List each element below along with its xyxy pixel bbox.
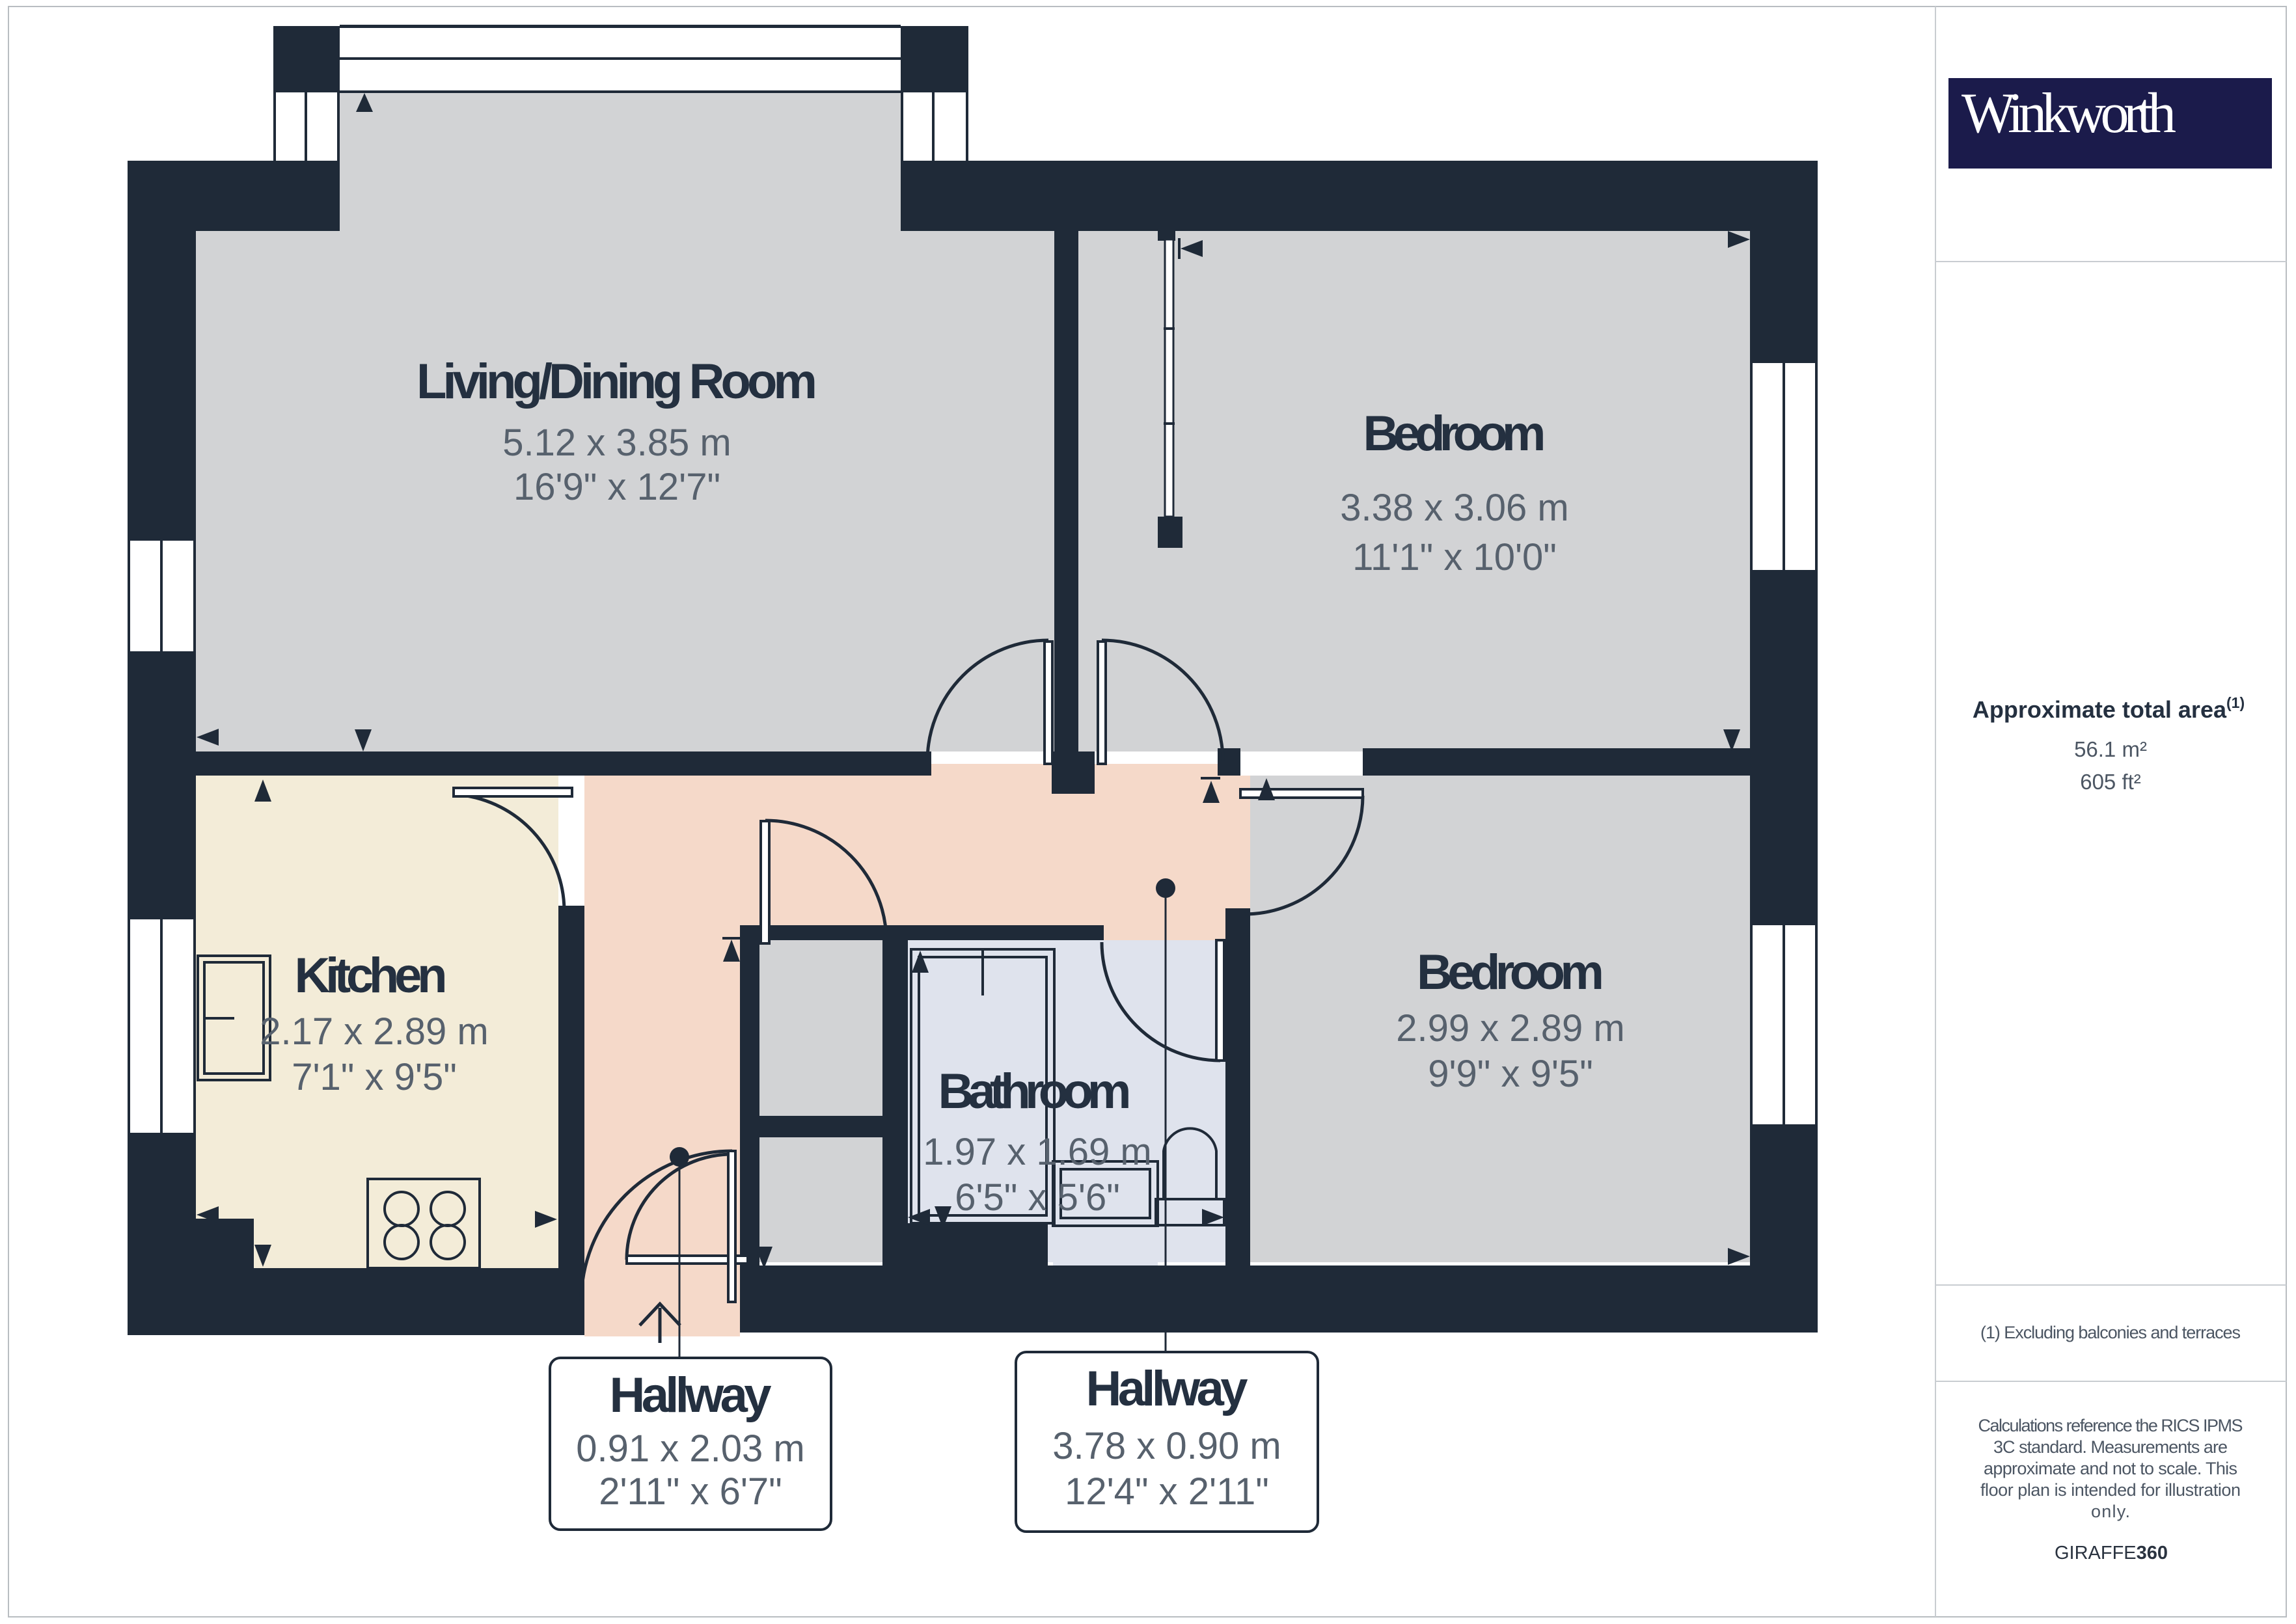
svg-text:605 ft²: 605 ft² <box>2080 770 2141 794</box>
svg-text:2'11" x 6'7": 2'11" x 6'7" <box>599 1470 782 1513</box>
svg-text:Bathroom: Bathroom <box>938 1064 1132 1119</box>
svg-text:Kitchen: Kitchen <box>295 948 448 1003</box>
svg-text:16'9" x 12'7": 16'9" x 12'7" <box>513 466 720 508</box>
svg-text:12'4" x 2'11": 12'4" x 2'11" <box>1065 1470 1269 1513</box>
svg-text:Calculations reference the RIC: Calculations reference the RICS IPMS <box>1978 1416 2243 1435</box>
svg-text:floor plan is intended for ill: floor plan is intended for illustration <box>1980 1480 2241 1500</box>
svg-text:0.91 x 2.03 m: 0.91 x 2.03 m <box>576 1428 804 1470</box>
svg-text:6'5" x 5'6": 6'5" x 5'6" <box>955 1176 1120 1219</box>
svg-text:(1) Excluding balconies and te: (1) Excluding balconies and terraces <box>1980 1323 2241 1342</box>
svg-text:only.: only. <box>2091 1502 2130 1521</box>
svg-text:1.97 x 1.69 m: 1.97 x 1.69 m <box>923 1131 1151 1173</box>
svg-text:2.99 x 2.89 m: 2.99 x 2.89 m <box>1396 1007 1624 1049</box>
svg-text:Living/Dining Room: Living/Dining Room <box>417 354 817 409</box>
svg-text:Approximate total area(1): Approximate total area(1) <box>1973 694 2245 723</box>
svg-text:7'1" x 9'5": 7'1" x 9'5" <box>292 1056 457 1098</box>
svg-text:2.17 x 2.89 m: 2.17 x 2.89 m <box>260 1010 488 1053</box>
svg-text:11'1" x 10'0": 11'1" x 10'0" <box>1352 536 1557 578</box>
svg-text:Winkworth: Winkworth <box>1961 82 2176 145</box>
svg-text:Bedroom: Bedroom <box>1417 945 1604 1000</box>
svg-text:Hallway: Hallway <box>1086 1361 1248 1416</box>
svg-text:3C standard. Measurements are: 3C standard. Measurements are <box>1993 1437 2228 1457</box>
svg-text:GIRAFFE360: GIRAFFE360 <box>2055 1543 2168 1563</box>
svg-text:Hallway: Hallway <box>610 1368 772 1423</box>
svg-text:approximate and not to scale.: approximate and not to scale. This <box>1984 1459 2237 1478</box>
svg-text:5.12 x 3.85 m: 5.12 x 3.85 m <box>502 422 731 464</box>
svg-text:9'9" x 9'5": 9'9" x 9'5" <box>1428 1053 1593 1095</box>
svg-text:3.38 x 3.06 m: 3.38 x 3.06 m <box>1340 487 1568 529</box>
svg-text:56.1 m²: 56.1 m² <box>2074 737 2147 761</box>
svg-text:3.78 x 0.90 m: 3.78 x 0.90 m <box>1052 1425 1281 1467</box>
svg-text:Bedroom: Bedroom <box>1363 406 1546 461</box>
